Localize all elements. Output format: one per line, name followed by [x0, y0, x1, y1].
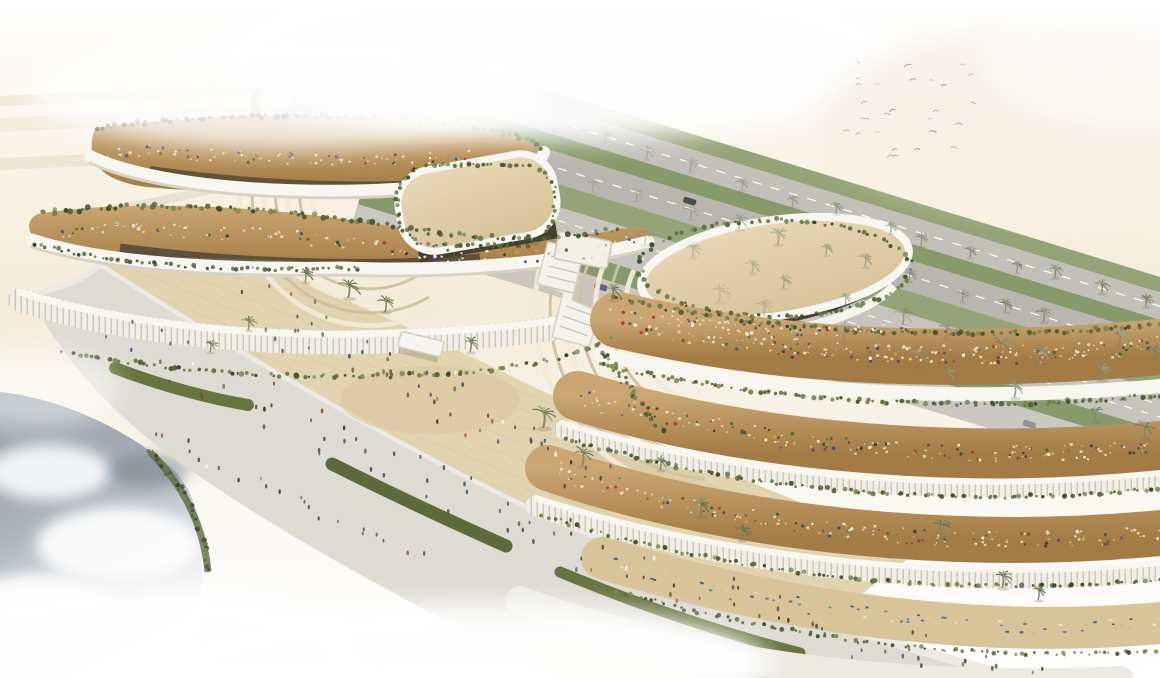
rendering-canvas — [0, 0, 1160, 678]
